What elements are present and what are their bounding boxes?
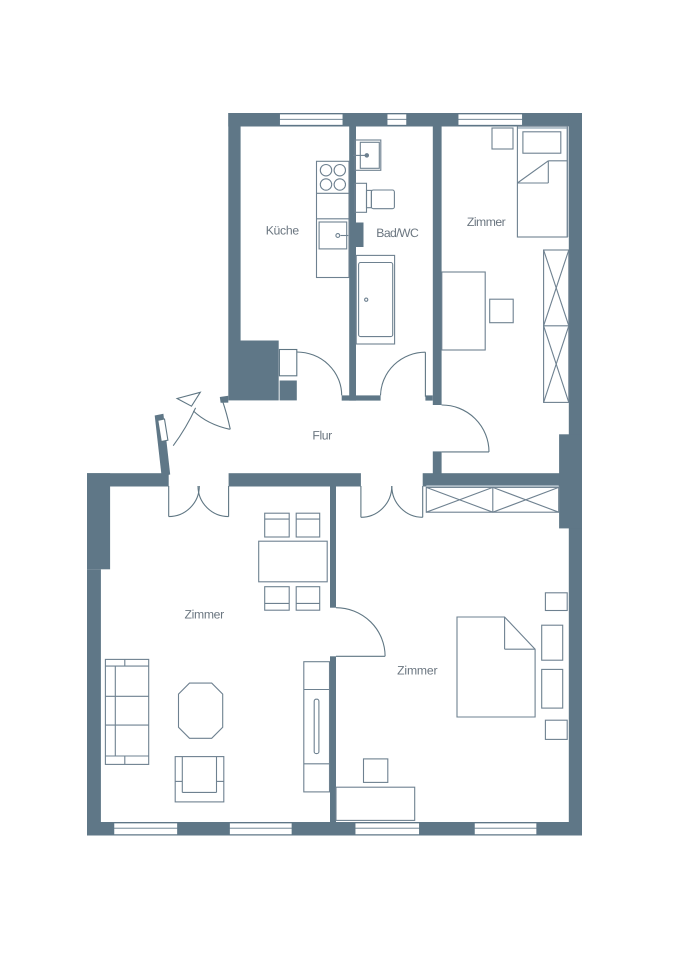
svg-text:Zimmer: Zimmer [467,215,506,229]
svg-text:Küche: Küche [266,224,300,238]
svg-text:Flur: Flur [312,429,332,443]
svg-text:Bad/WC: Bad/WC [376,226,419,240]
svg-text:Zimmer: Zimmer [397,663,438,677]
svg-text:Zimmer: Zimmer [185,607,225,621]
